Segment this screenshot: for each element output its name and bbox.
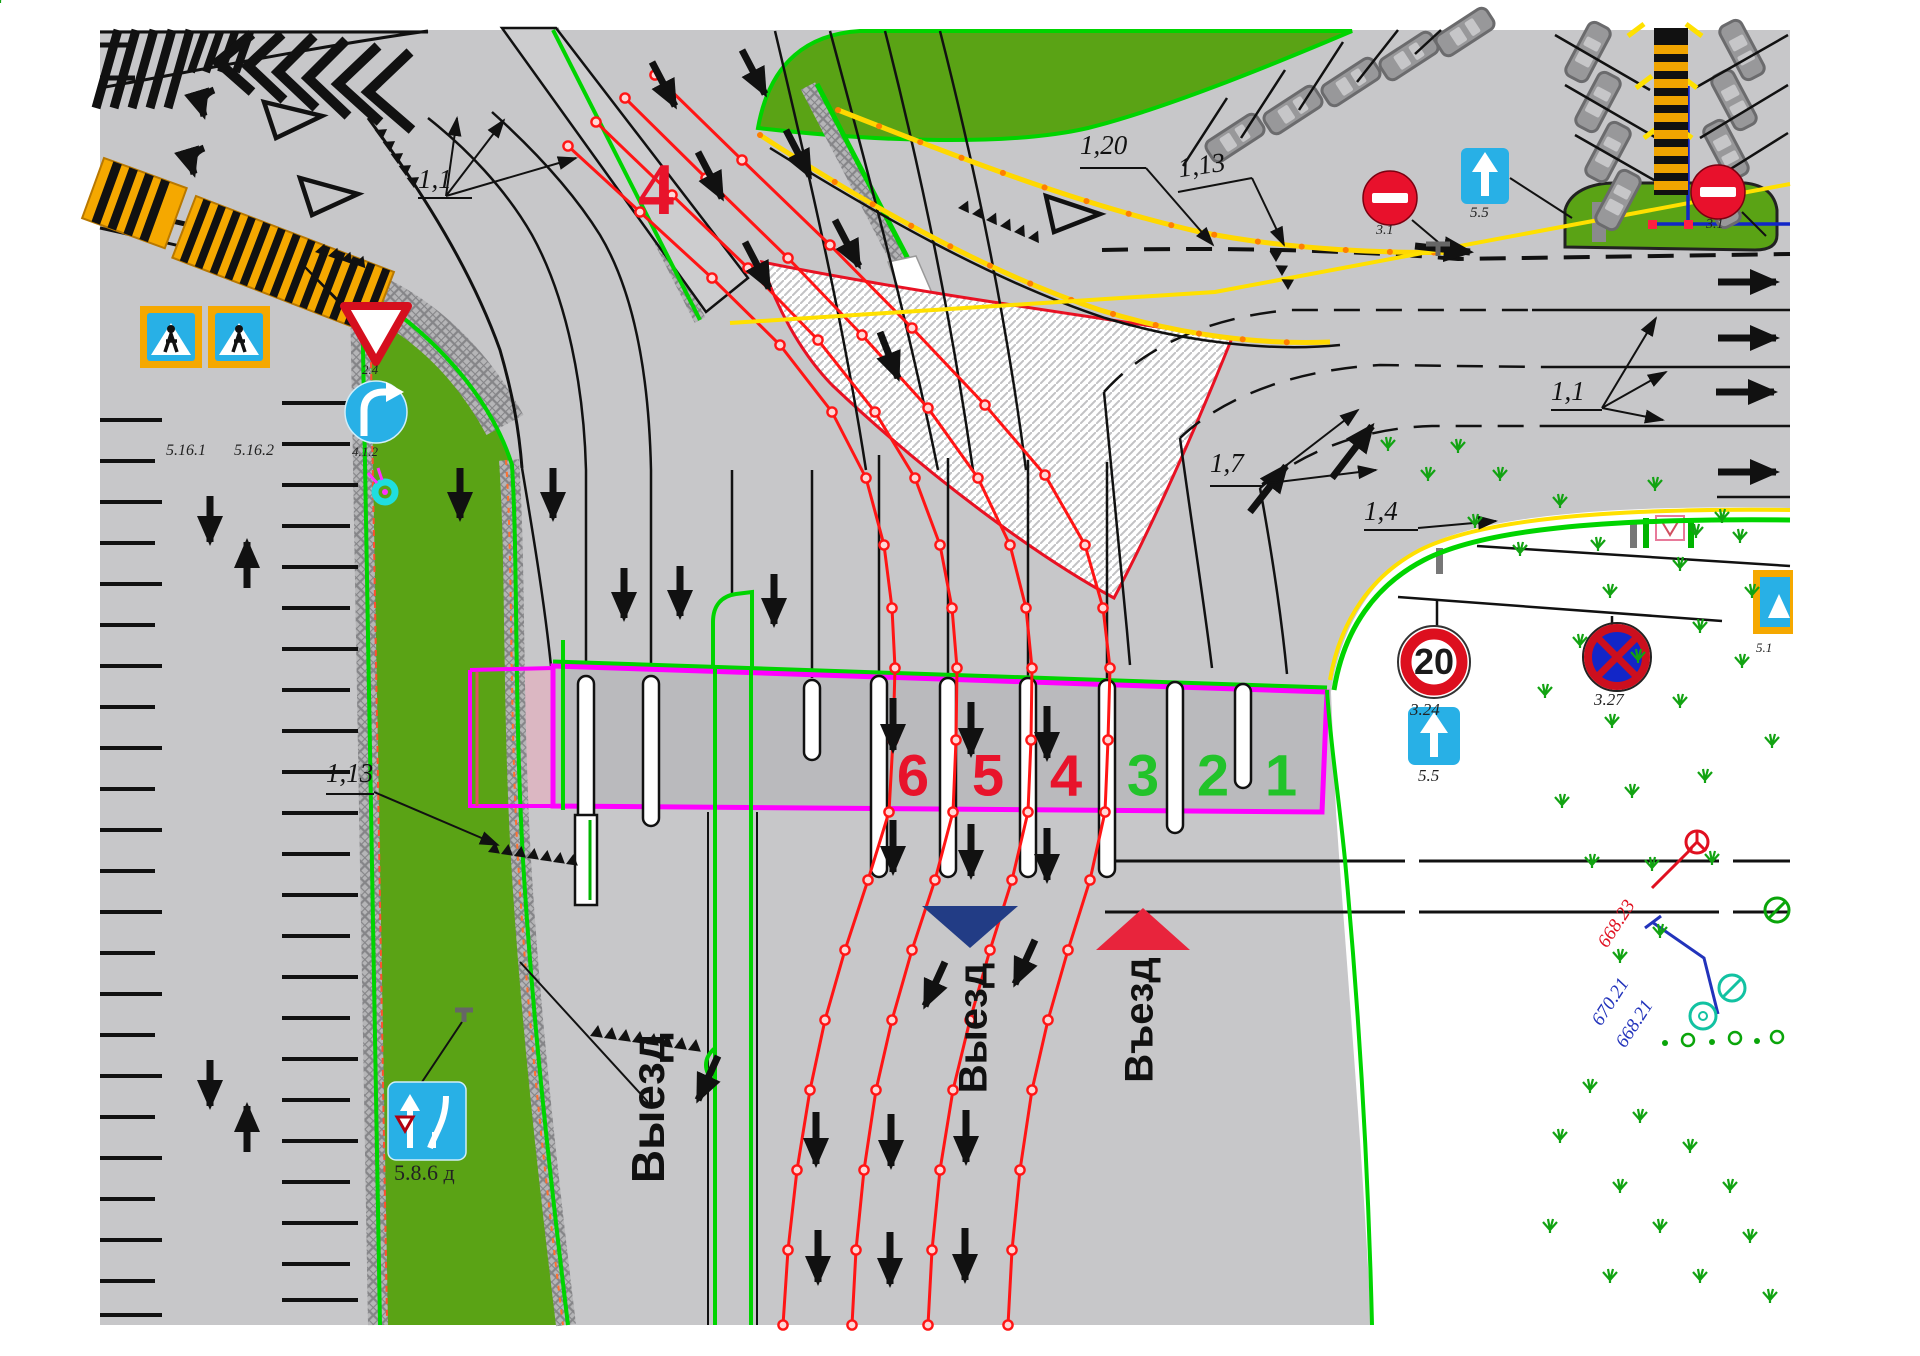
sign-no-entry-1-icon bbox=[1363, 171, 1417, 225]
label-marking-1-20: 1,20 bbox=[1080, 130, 1127, 161]
label-sign-5-8-6: 5.8.6 д bbox=[394, 1160, 455, 1186]
label-sign-3-1-a: 3.1 bbox=[1376, 223, 1394, 239]
label-sign-3-1-b: 3.1 bbox=[1706, 217, 1724, 233]
label-marking-1-1-right: 1,1 bbox=[1551, 376, 1585, 407]
label-marking-1-1-topleft: 1,1 bbox=[418, 164, 452, 195]
plan-drawing bbox=[0, 0, 1920, 1356]
direction-entry: Въезд bbox=[1118, 957, 1163, 1083]
speed-limit-value: 20 bbox=[1414, 641, 1454, 683]
label-marking-1-13-left: 1,13 bbox=[326, 758, 373, 789]
lane-number-6: 6 bbox=[897, 743, 929, 810]
sign-ped-crossing-2-icon bbox=[208, 306, 270, 368]
label-road-number: 4 bbox=[638, 148, 675, 233]
booth bbox=[575, 815, 597, 905]
sign-turn-right-icon bbox=[345, 381, 407, 443]
label-sign-edge: 5.1 bbox=[1756, 640, 1772, 656]
lane-number-1: 1 bbox=[1265, 743, 1297, 810]
sign-lane-merge-icon bbox=[388, 1082, 466, 1160]
lane-number-4: 4 bbox=[1050, 743, 1082, 810]
traffic-plan-canvas: 1,1 1,1 1,20 1,13 1,7 1,4 1,13 4 6 5 4 3… bbox=[0, 0, 1920, 1356]
lane-number-2: 2 bbox=[1197, 743, 1229, 810]
sign-ped-crossing-1-icon bbox=[140, 306, 202, 368]
sign-edge-partial-icon bbox=[1753, 570, 1793, 634]
label-sign-3-24: 3.24 bbox=[1410, 700, 1440, 720]
label-marking-1-7: 1,7 bbox=[1210, 448, 1244, 479]
label-sign-5-16-1: 5.16.1 bbox=[166, 442, 206, 460]
crosswalk-ladder bbox=[1654, 28, 1688, 195]
label-marking-1-13-top: 1,13 bbox=[1176, 147, 1227, 184]
direction-exit-left: Выезд bbox=[621, 1033, 675, 1183]
direction-exit-mid: Выезд bbox=[952, 963, 997, 1094]
label-sign-3-27: 3.27 bbox=[1594, 690, 1624, 710]
label-sign-4-1-2: 4.1.2 bbox=[352, 444, 378, 460]
post-icon bbox=[1630, 522, 1637, 548]
utility-symbols bbox=[1645, 831, 1789, 1046]
lane-number-5: 5 bbox=[972, 743, 1004, 810]
sign-no-entry-2-icon bbox=[1691, 165, 1745, 219]
sign-one-way-top-icon bbox=[1461, 148, 1509, 204]
label-sign-5-5-a: 5.5 bbox=[1470, 205, 1489, 222]
label-sign-5-5-b: 5.5 bbox=[1418, 766, 1439, 786]
label-sign-5-16-2: 5.16.2 bbox=[234, 442, 274, 460]
label-sign-2-4: 2.4 bbox=[362, 362, 378, 378]
lane-number-3: 3 bbox=[1127, 743, 1159, 810]
label-marking-1-4: 1,4 bbox=[1364, 496, 1398, 527]
